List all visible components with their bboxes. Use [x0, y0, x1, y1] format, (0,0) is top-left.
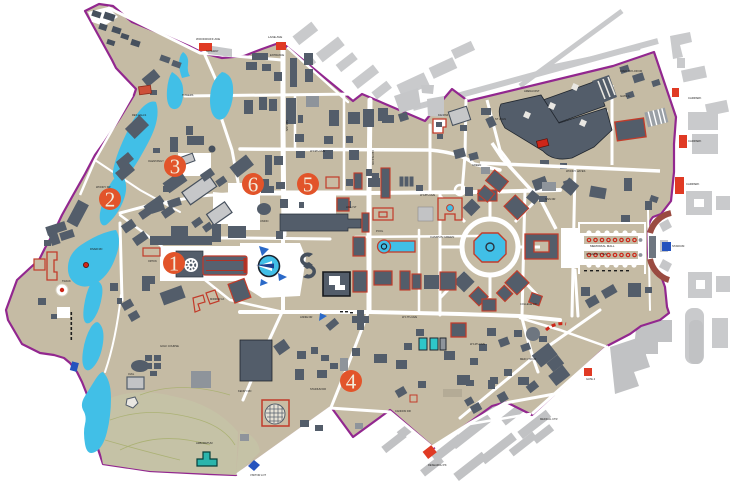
svg-text:ANNIE DR: ANNIE DR [300, 315, 313, 319]
svg-text:RESEARCH PK: RESEARCH PK [428, 463, 447, 467]
svg-text:1: 1 [169, 252, 180, 276]
svg-text:ARENA DIST: ARENA DIST [524, 89, 540, 93]
svg-text:WOODY HAYES: WOODY HAYES [566, 169, 586, 173]
svg-text:3: 3 [170, 155, 181, 179]
svg-text:W 12TH AVE: W 12TH AVE [470, 342, 485, 346]
svg-text:GATE 4: GATE 4 [586, 377, 596, 381]
svg-text:STADIUM: STADIUM [672, 244, 685, 248]
svg-text:5: 5 [303, 173, 314, 197]
svg-text:TRACK: TRACK [62, 279, 71, 283]
svg-text:COLLEGE RD: COLLEGE RD [520, 302, 537, 306]
svg-text:GREEN: GREEN [472, 163, 481, 167]
svg-text:UNIVERSITY AVE: UNIVERSITY AVE [586, 252, 607, 256]
svg-text:RES HALLS: RES HALLS [132, 113, 147, 117]
svg-text:CARPARK: CARPARK [686, 182, 699, 186]
svg-text:IVES DR: IVES DR [545, 197, 556, 201]
svg-text:CARPARK: CARPARK [688, 139, 701, 143]
svg-text:ICE RINK: ICE RINK [438, 114, 449, 117]
svg-text:GATE 1: GATE 1 [620, 94, 630, 98]
svg-text:STADIUM DR: STADIUM DR [310, 387, 326, 391]
svg-text:CARPARK: CARPARK [688, 96, 701, 100]
svg-text:MIRROR LK: MIRROR LK [210, 297, 225, 301]
svg-text:ARBORETUM: ARBORETUM [196, 441, 213, 445]
svg-text:CAMPUS GREEN: CAMPUS GREEN [430, 235, 454, 239]
svg-text:W 18TH AVE: W 18TH AVE [420, 193, 435, 197]
svg-text:CENTER DR: CENTER DR [371, 150, 375, 165]
svg-text:POOL: POOL [376, 229, 384, 233]
svg-text:OVAL: OVAL [128, 373, 135, 376]
svg-text:6: 6 [248, 173, 259, 197]
svg-text:GATEWAY: GATEWAY [206, 49, 219, 53]
svg-text:OLENTANGY: OLENTANGY [148, 159, 164, 163]
svg-text:ENTRANCE: ENTRANCE [270, 53, 285, 57]
svg-text:LANE AVE: LANE AVE [268, 35, 282, 39]
svg-text:FRED TAYLOR DR: FRED TAYLOR DR [620, 69, 642, 73]
svg-text:MEDICAL CTR: MEDICAL CTR [540, 417, 558, 421]
svg-text:ST JOHN: ST JOHN [495, 117, 506, 121]
svg-text:VISITOR LOT: VISITOR LOT [250, 473, 267, 477]
svg-text:W 17TH AVE: W 17TH AVE [402, 315, 417, 319]
svg-text:UNION: UNION [260, 219, 268, 223]
svg-text:KENNY RD: KENNY RD [238, 389, 251, 393]
svg-text:TOWERS: TOWERS [182, 93, 194, 97]
svg-text:GOLF COURSE: GOLF COURSE [160, 344, 179, 348]
svg-text:RIVER RD: RIVER RD [90, 247, 103, 251]
svg-text:HIGH ST: HIGH ST [346, 205, 357, 209]
svg-text:CANNON DR: CANNON DR [395, 409, 411, 413]
svg-text:NEIL AVE: NEIL AVE [285, 120, 289, 132]
svg-text:ORTON: ORTON [148, 260, 157, 263]
svg-text:MEMORIAL MALL: MEMORIAL MALL [590, 244, 615, 248]
svg-text:MED CTR DR: MED CTR DR [520, 357, 536, 361]
svg-text:WOODRUFF AVE: WOODRUFF AVE [196, 37, 220, 41]
svg-text:4: 4 [346, 370, 357, 394]
svg-text:2: 2 [105, 188, 116, 212]
svg-text:W 19TH AVE: W 19TH AVE [310, 149, 325, 153]
